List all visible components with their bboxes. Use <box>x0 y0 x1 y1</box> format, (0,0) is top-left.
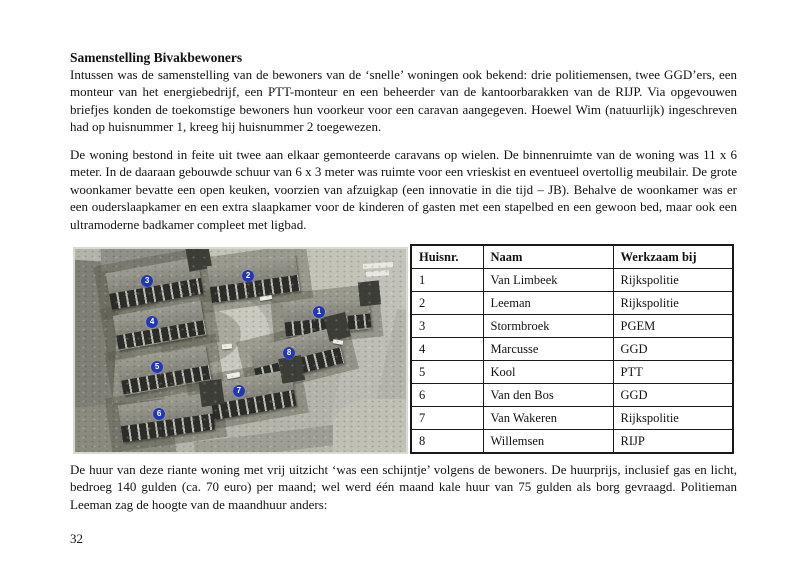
table-row: 1Van LimbeekRijkspolitie <box>411 269 733 292</box>
house-number-badge-6: 6 <box>153 408 165 420</box>
residents-table-container: Huisnr.NaamWerkzaam bij 1Van LimbeekRijk… <box>410 244 734 454</box>
table-cell: Marcusse <box>483 338 613 361</box>
table-cell: Leeman <box>483 292 613 315</box>
table-cell: 3 <box>411 315 483 338</box>
table-cell: 7 <box>411 407 483 430</box>
table-row: 7Van WakerenRijkspolitie <box>411 407 733 430</box>
table-cell: PTT <box>613 361 733 384</box>
paragraph-rent: De huur van deze riante woning met vrij … <box>70 461 737 513</box>
residents-table: Huisnr.NaamWerkzaam bij 1Van LimbeekRijk… <box>410 244 734 454</box>
table-cell: 8 <box>411 430 483 454</box>
house-number-badge-8: 8 <box>283 347 295 359</box>
table-cell: 1 <box>411 269 483 292</box>
aerial-photo: 12345678 <box>73 247 408 454</box>
house-number-badge-4: 4 <box>146 316 158 328</box>
book-page: { "document": { "heading": "Samenstellin… <box>0 0 800 566</box>
column-header: Naam <box>483 245 613 269</box>
table-cell: 2 <box>411 292 483 315</box>
table-cell: Van Limbeek <box>483 269 613 292</box>
house-number-badge-1: 1 <box>313 306 325 318</box>
table-row: 5KoolPTT <box>411 361 733 384</box>
column-header: Huisnr. <box>411 245 483 269</box>
table-row: 8WillemsenRIJP <box>411 430 733 454</box>
photo-shed <box>198 379 224 407</box>
table-row: 2LeemanRijkspolitie <box>411 292 733 315</box>
table-cell: PGEM <box>613 315 733 338</box>
table-cell: Van den Bos <box>483 384 613 407</box>
section-heading: Samenstelling Bivakbewoners <box>70 50 737 66</box>
paragraph-dwelling-description: De woning bestond in feite uit twee aan … <box>70 146 737 233</box>
house-number-badge-3: 3 <box>141 275 153 287</box>
table-cell: 4 <box>411 338 483 361</box>
table-header-row: Huisnr.NaamWerkzaam bij <box>411 245 733 269</box>
house-number-badge-5: 5 <box>151 361 163 373</box>
table-cell: 5 <box>411 361 483 384</box>
table-cell: Kool <box>483 361 613 384</box>
table-row: 6Van den BosGGD <box>411 384 733 407</box>
table-cell: Stormbroek <box>483 315 613 338</box>
table-cell: Rijkspolitie <box>613 407 733 430</box>
table-cell: GGD <box>613 384 733 407</box>
table-cell: RIJP <box>613 430 733 454</box>
photo-shed <box>278 355 304 384</box>
table-cell: Willemsen <box>483 430 613 454</box>
photo-shed <box>358 280 381 306</box>
page-number: 32 <box>70 531 83 547</box>
table-cell: Rijkspolitie <box>613 292 733 315</box>
table-cell: GGD <box>613 338 733 361</box>
table-cell: 6 <box>411 384 483 407</box>
table-cell: Rijkspolitie <box>613 269 733 292</box>
paragraph-residents-intro: Intussen was de samenstelling van de bew… <box>70 66 737 136</box>
house-number-badge-7: 7 <box>233 385 245 397</box>
table-row: 4MarcusseGGD <box>411 338 733 361</box>
house-number-badge-2: 2 <box>242 270 254 282</box>
column-header: Werkzaam bij <box>613 245 733 269</box>
table-row: 3StormbroekPGEM <box>411 315 733 338</box>
photo-sandy-corner <box>333 399 408 454</box>
table-cell: Van Wakeren <box>483 407 613 430</box>
